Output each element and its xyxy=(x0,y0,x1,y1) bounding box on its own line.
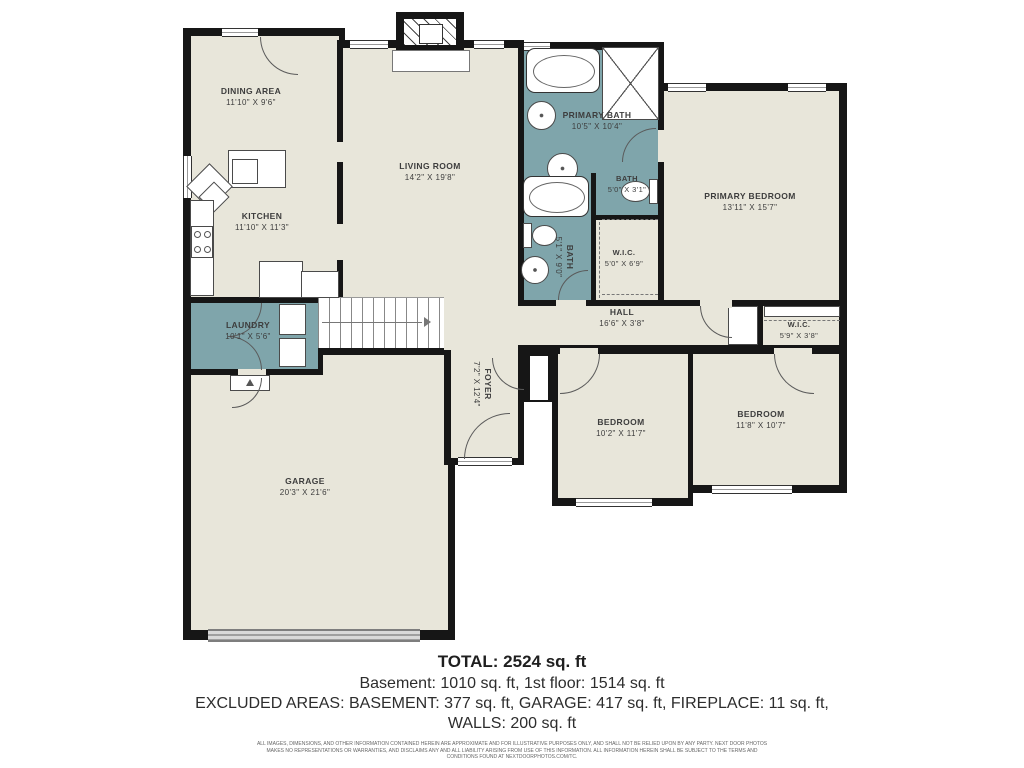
room-name: LAUNDRY xyxy=(225,320,271,331)
closet-shelf xyxy=(764,306,840,317)
kitchen-island xyxy=(259,261,303,298)
dryer xyxy=(279,338,306,367)
room-name: W.I.C. xyxy=(780,319,818,330)
stair-direction-line xyxy=(322,322,422,323)
primary-bedroom-label: PRIMARY BEDROOM 13'11" X 15'7" xyxy=(704,191,795,213)
room-name: KITCHEN xyxy=(235,211,289,222)
bathroom-sink xyxy=(527,101,556,130)
room-dims: 20'3" X 21'6" xyxy=(280,487,330,498)
washer xyxy=(279,304,306,335)
closet-rod xyxy=(599,222,600,298)
dining-area-label: DINING AREA 11'10" X 9'6" xyxy=(221,86,281,108)
room-dims: 11'10" X 11'3" xyxy=(235,222,289,233)
stair-direction-arrow xyxy=(424,317,431,327)
room-name: BATH xyxy=(608,173,646,184)
bathtub-basin xyxy=(533,55,595,88)
door-opening xyxy=(556,300,586,308)
room-name: W.I.C. xyxy=(605,247,643,258)
room-dims: 5'9" X 3'8" xyxy=(780,330,818,341)
wic-hall-label: W.I.C. 5'9" X 3'8" xyxy=(780,319,818,341)
foyer-label: FOYER 7'2" X 12'4" xyxy=(471,361,493,407)
room-dims: 5'0" X 6'9" xyxy=(605,258,643,269)
window xyxy=(222,28,258,37)
room-name: LIVING ROOM xyxy=(399,161,461,172)
room-dims: 14'2" X 19'8" xyxy=(399,172,461,183)
garage-label: GARAGE 20'3" X 21'6" xyxy=(280,476,330,498)
window xyxy=(788,83,826,92)
room-dims: 13'11" X 15'7" xyxy=(704,202,795,213)
door-opening xyxy=(658,130,664,162)
excluded-walls-text: WALLS: 200 sq. ft xyxy=(0,715,1024,733)
linen-closet xyxy=(728,306,758,345)
room-name: PRIMARY BEDROOM xyxy=(704,191,795,202)
burner-icon xyxy=(204,246,211,253)
room-name: BATH xyxy=(564,237,575,278)
floor-areas-text: Basement: 1010 sq. ft, 1st floor: 1514 s… xyxy=(0,675,1024,693)
bathtub-basin xyxy=(529,182,585,213)
foyer-closet xyxy=(524,350,554,402)
window xyxy=(474,40,504,49)
kitchen-peninsula-appliance xyxy=(232,159,258,184)
toilet-tank xyxy=(523,223,532,248)
wall-opening xyxy=(337,224,350,260)
fireplace-insert xyxy=(419,24,443,44)
bath-small-label: BATH 5'0" X 3'1" xyxy=(608,173,646,195)
fireplace-hearth xyxy=(392,50,470,72)
bath-hall-label: BATH 5'1" X 9'0" xyxy=(553,237,575,278)
room-name: DINING AREA xyxy=(221,86,281,97)
room-name: PRIMARY BATH xyxy=(563,110,632,121)
room-dims: 16'6" X 3'8" xyxy=(599,318,645,329)
excluded-areas-text: EXCLUDED AREAS: BASEMENT: 377 sq. ft, GA… xyxy=(0,695,1024,713)
room-dims: 11'10" X 9'6" xyxy=(221,97,281,108)
laundry-label: LAUNDRY 10'1" X 5'6" xyxy=(225,320,271,342)
room-dims: 5'0" X 3'1" xyxy=(608,184,646,195)
window xyxy=(668,83,706,92)
bedroom-right-label: BEDROOM 11'8" X 10'7" xyxy=(736,409,786,431)
room-dims: 5'1" X 9'0" xyxy=(553,237,564,278)
kitchen-island-extension xyxy=(301,271,339,298)
kitchen-label: KITCHEN 11'10" X 11'3" xyxy=(235,211,289,233)
area-summary: TOTAL: 2524 sq. ft Basement: 1010 sq. ft… xyxy=(0,652,1024,761)
stove-cooktop xyxy=(191,226,213,258)
closet-rod xyxy=(602,294,658,295)
total-area-text: TOTAL: 2524 sq. ft xyxy=(0,652,1024,672)
wall-opening xyxy=(337,142,350,162)
bathroom-sink xyxy=(521,256,549,284)
room-dims: 7'2" X 12'4" xyxy=(471,361,482,407)
burner-icon xyxy=(194,231,201,238)
room-dims: 10'5" X 10'4" xyxy=(563,121,632,132)
room-name: GARAGE xyxy=(280,476,330,487)
hall-label: HALL 16'6" X 3'8" xyxy=(599,307,645,329)
window xyxy=(712,485,792,494)
bedroom-mid-label: BEDROOM 10'2" X 11'7" xyxy=(596,417,646,439)
burner-icon xyxy=(204,231,211,238)
room-dims: 10'2" X 11'7" xyxy=(596,428,646,439)
room-dims: 10'1" X 5'6" xyxy=(225,331,271,342)
window xyxy=(350,40,388,49)
primary-bath-label: PRIMARY BATH 10'5" X 10'4" xyxy=(563,110,632,132)
burner-icon xyxy=(194,246,201,253)
wic-primary-label: W.I.C. 5'0" X 6'9" xyxy=(605,247,643,269)
disclaimer-text: ALL IMAGES, DIMENSIONS, AND OTHER INFORM… xyxy=(252,741,772,761)
garage-door xyxy=(208,629,420,642)
living-room-label: LIVING ROOM 14'2" X 19'8" xyxy=(399,161,461,183)
room-dims: 11'8" X 10'7" xyxy=(736,420,786,431)
room-name: FOYER xyxy=(482,361,493,407)
window xyxy=(576,498,652,507)
room-name: HALL xyxy=(599,307,645,318)
closet-rod xyxy=(602,219,658,220)
room-name: BEDROOM xyxy=(736,409,786,420)
room-name: BEDROOM xyxy=(596,417,646,428)
toilet-tank xyxy=(649,179,658,204)
